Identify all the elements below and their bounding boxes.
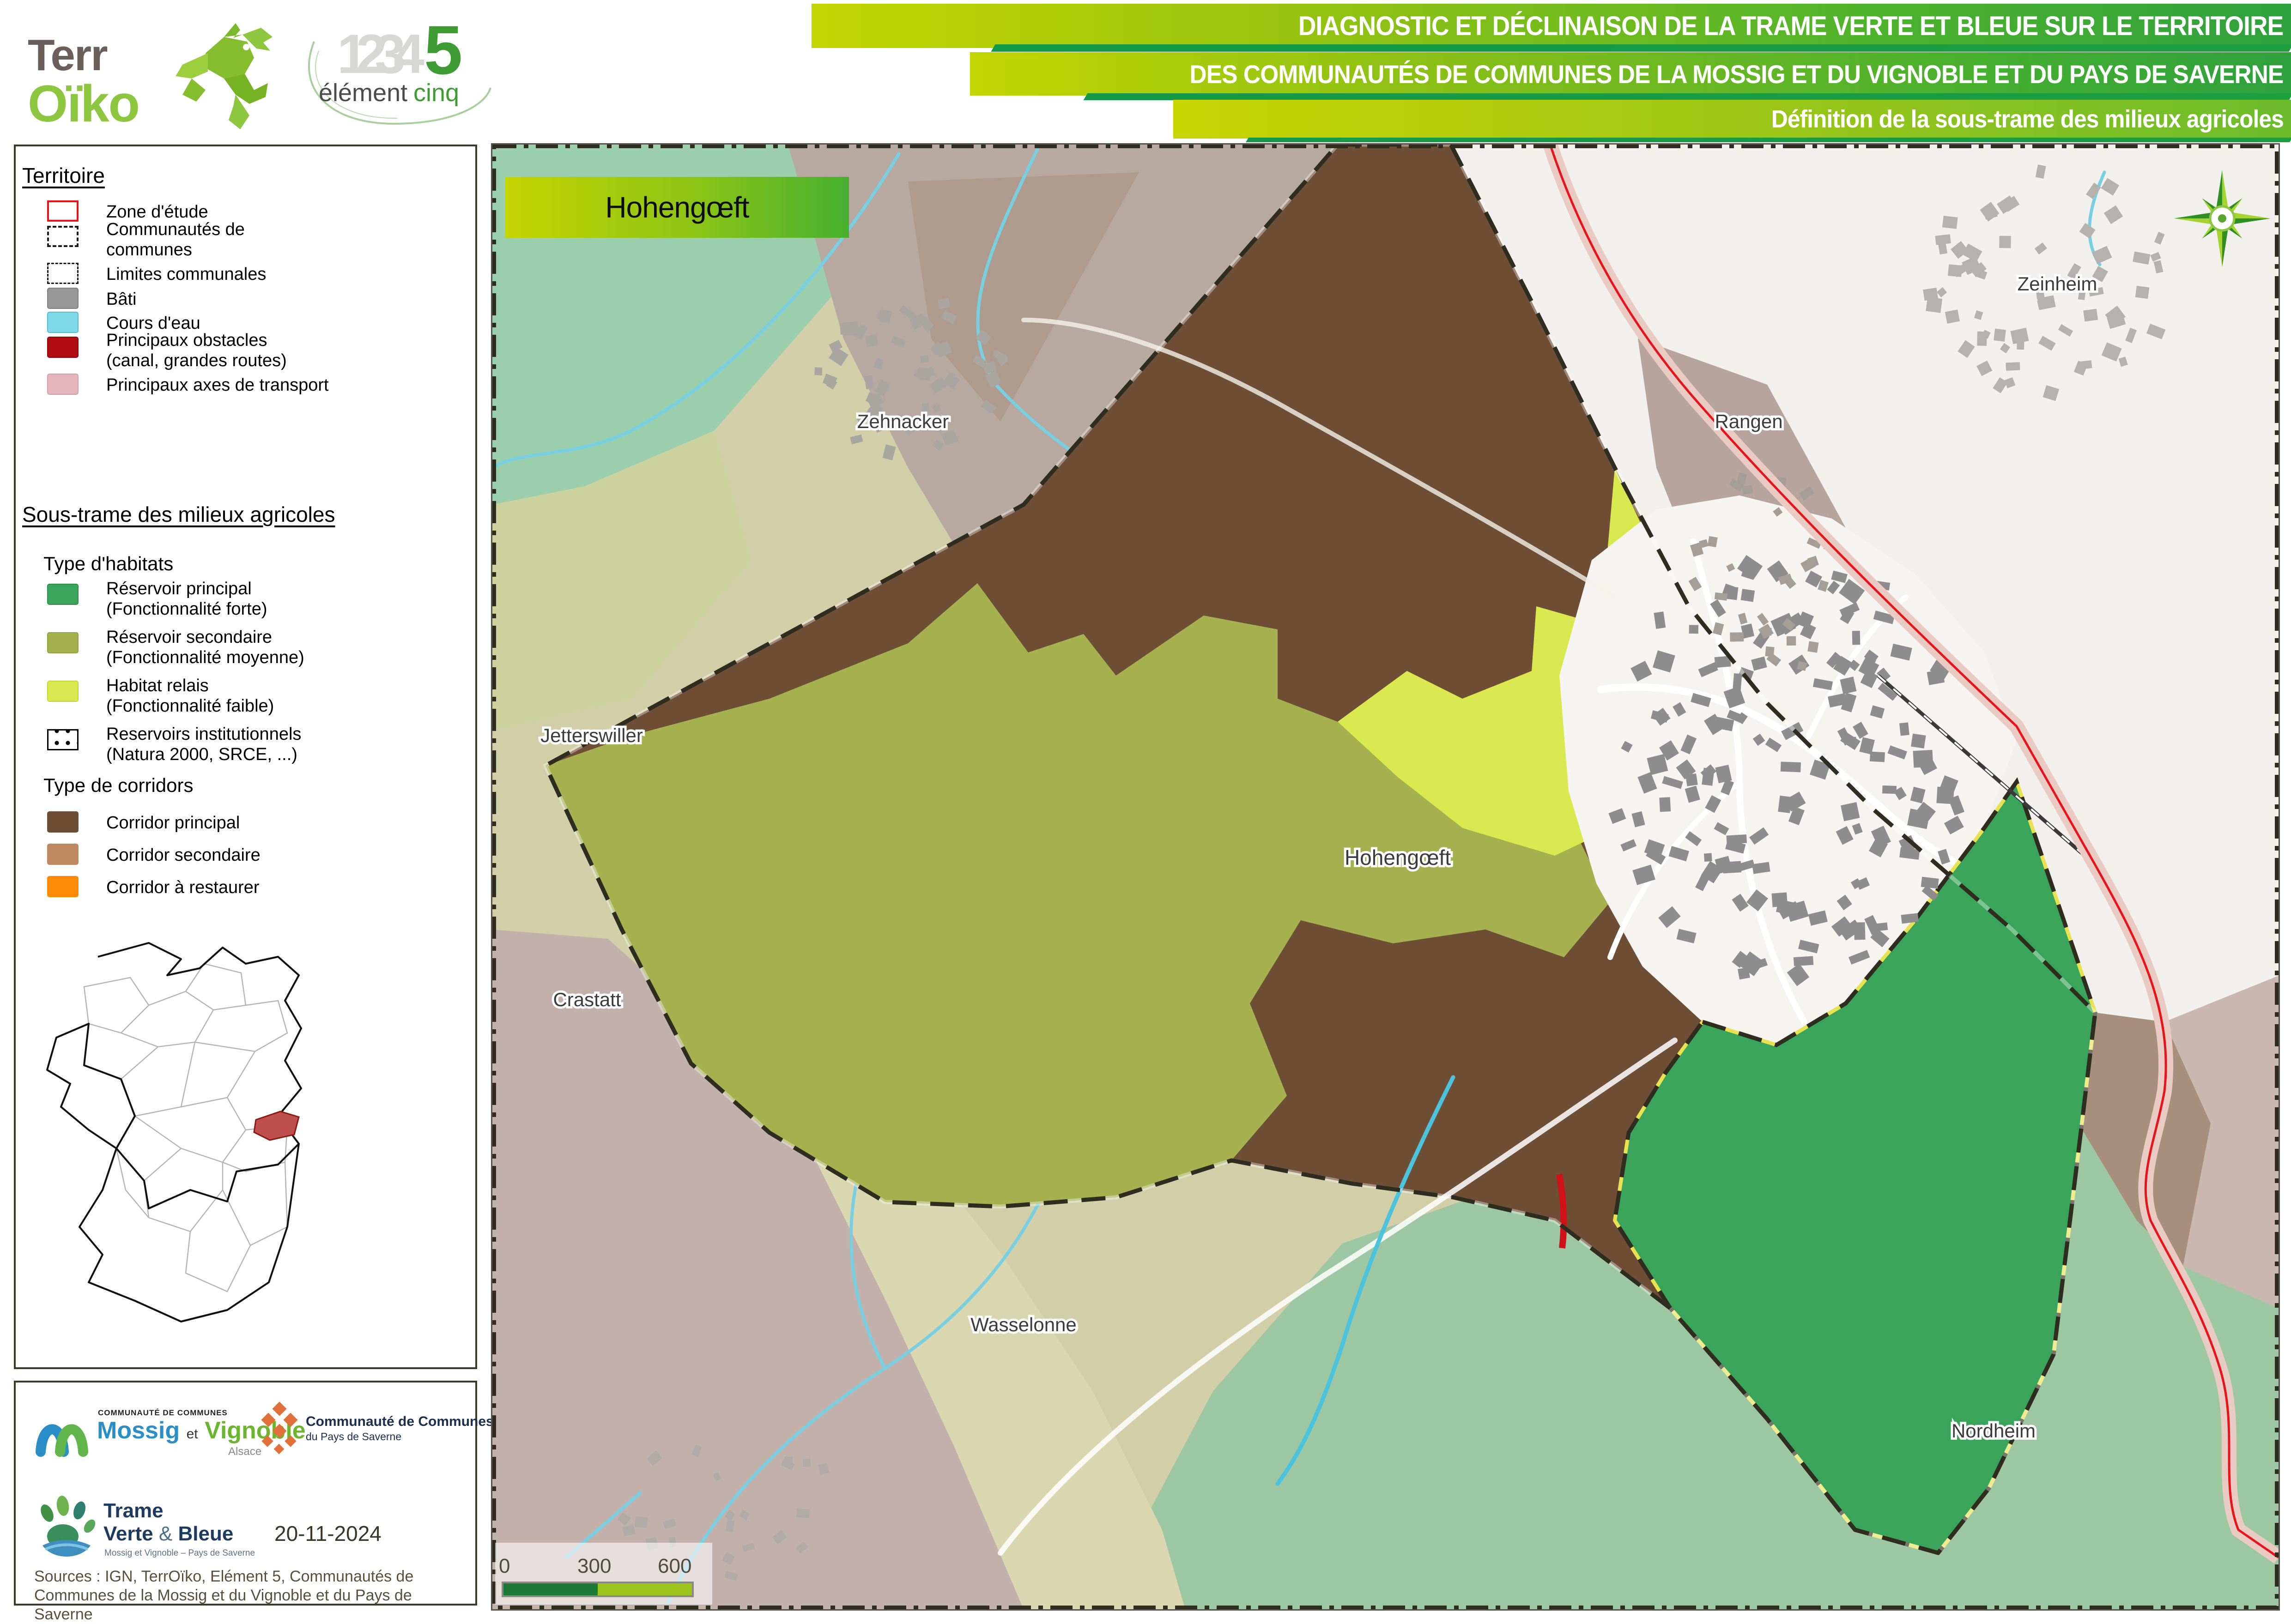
map-viewport[interactable]: Zehnacker Zeinheim Rangen Jetterswiller …: [491, 143, 2280, 1611]
map-title-text: Hohengœft: [605, 190, 749, 224]
terroiko-logo-text-oiko: Oïko: [28, 74, 139, 133]
legend-swatch-habitat-relais: [47, 681, 79, 702]
legend-label-communautes: Communautés de: [106, 219, 245, 240]
map-date: 20-11-2024: [274, 1521, 382, 1546]
banner-accent-bar: [1246, 138, 2291, 142]
tvb-logo-line2: Verte & Bleue: [103, 1522, 233, 1546]
legend-label-obstacles: Principaux obstacles: [106, 330, 267, 350]
legend-label-reservoir-principal: Réservoir principal: [106, 579, 252, 599]
scale-bar-segments: [502, 1582, 694, 1597]
saverne-logo-line2: du Pays de Saverne: [306, 1431, 401, 1443]
element-cinq-text-cinq: cinq: [413, 78, 459, 107]
scale-tick-0: 0: [499, 1555, 510, 1578]
legend-label-reservoirs-institutionnels: Reservoirs institutionnels: [106, 724, 301, 744]
tvb-verte: Verte: [103, 1522, 153, 1545]
tvb-logo-line1: Trame: [103, 1499, 164, 1522]
mossig-name1: Mossig: [97, 1417, 180, 1444]
legend-swatch-reservoirs-institutionnels: [47, 729, 79, 750]
tvb-amp: &: [159, 1522, 172, 1545]
legend-habitats-subtitle: Type d'habitats: [43, 553, 173, 575]
title-banner-2-text: DES COMMUNAUTÉS DE COMMUNES DE LA MOSSIG…: [1189, 59, 2291, 89]
mossig-logo-small-text: COMMUNAUTÉ DE COMMUNES: [98, 1408, 228, 1418]
legend-label-habitat-relais: Habitat relais: [106, 676, 209, 696]
legend-label-corridor-restaurer: Corridor à restaurer: [106, 877, 260, 898]
mossig-et: et: [187, 1426, 198, 1442]
trame-verte-bleue-logo: Trame Verte & Bleue Mossig et Vignoble –…: [34, 1496, 256, 1570]
saverne-diamonds-icon: [256, 1401, 302, 1456]
title-banner-2: DES COMMUNAUTÉS DE COMMUNES DE LA MOSSIG…: [970, 52, 2291, 96]
legend-swatch-corridor-restaurer: [47, 876, 79, 897]
legend-swatch-cours-eau: [47, 312, 79, 333]
legend-swatch-obstacles: [47, 337, 79, 358]
legend-swatch-corridor-principal: [47, 811, 79, 833]
label-zehnacker: Zehnacker: [857, 411, 949, 432]
legend-swatch-reservoir-principal: [47, 584, 79, 605]
mossig-m-icon: [34, 1406, 90, 1461]
footer-panel: COMMUNAUTÉ DE COMMUNES Mossig et Vignobl…: [14, 1381, 477, 1606]
legend-swatch-reservoir-secondaire: [47, 632, 79, 653]
legend-label-habitat-relais-2: (Fonctionnalité faible): [106, 696, 274, 716]
tvb-logo-subtitle: Mossig et Vignoble – Pays de Saverne: [104, 1548, 255, 1558]
legend-label-reservoir-secondaire-2: (Fonctionnalité moyenne): [106, 647, 304, 668]
title-banner-1: DIAGNOSTIC ET DÉCLINAISON DE LA TRAME VE…: [812, 4, 2291, 48]
tvb-paw-icon: [34, 1496, 99, 1565]
mossig-vignoble-logo: COMMUNAUTÉ DE COMMUNES Mossig et Vignobl…: [34, 1401, 251, 1470]
legend-swatch-axes-transport: [47, 374, 79, 395]
legend-swatch-limites: [47, 263, 79, 284]
legend-swatch-zone-etude: [47, 200, 79, 222]
legend-label-reservoirs-institutionnels-2: (Natura 2000, SRCE, ...): [106, 744, 297, 765]
label-zeinheim: Zeinheim: [2018, 273, 2097, 295]
tvb-bleue: Bleue: [178, 1522, 233, 1545]
frog-icon: [155, 9, 289, 134]
legend-swatch-corridor-secondaire: [47, 844, 79, 865]
scale-tick-300: 300: [577, 1555, 611, 1578]
scale-bar: 0 300 600 m: [495, 1543, 712, 1605]
title-banner-1-text: DIAGNOSTIC ET DÉCLINAISON DE LA TRAME VE…: [1298, 11, 2291, 42]
element-cinq-numbers: 1234: [337, 22, 412, 86]
legend-label-reservoir-secondaire: Réservoir secondaire: [106, 627, 272, 647]
label-crastatt: Crastatt: [553, 989, 621, 1010]
legend-label-axes-transport: Principaux axes de transport: [106, 375, 329, 395]
header: Terr Oïko 1234 5 élément cinq DIAGNOSTIC…: [0, 0, 2291, 143]
banner-accent-bar: [991, 44, 2291, 52]
legend-label-corridor-principal: Corridor principal: [106, 813, 240, 833]
pays-saverne-logo: Communauté de Communes du Pays de Savern…: [256, 1401, 473, 1470]
legend-swatch-bati: [47, 288, 79, 309]
saverne-logo-line1: Communauté de Communes: [306, 1414, 494, 1430]
inset-cc-boundary: [84, 1065, 135, 1148]
legend-label-reservoir-principal-2: (Fonctionnalité forte): [106, 599, 267, 619]
sources-text: Sources : IGN, TerrOïko, Elément 5, Comm…: [34, 1567, 459, 1624]
label-wasselonne: Wasselonne: [970, 1314, 1077, 1335]
legend-territoire-title: Territoire: [22, 163, 105, 188]
terroiko-logo: Terr Oïko: [25, 9, 284, 134]
label-hohengoeft: Hohengœft: [1345, 845, 1451, 869]
legend-panel: Territoire Zone d'étude Communautés de c…: [14, 145, 477, 1369]
legend-soustrame-title: Sous-trame des milieux agricoles: [22, 502, 335, 527]
element-cinq-logo: 1234 5 élément cinq: [300, 14, 494, 134]
map-title-box: Hohengœft: [505, 177, 849, 238]
banner-accent-bar: [1084, 93, 2291, 100]
legend-corridors-subtitle: Type de corridors: [43, 774, 193, 797]
legend-label-limites: Limites communales: [106, 264, 266, 284]
legend-label-communautes-2: communes: [106, 240, 192, 260]
label-rangen: Rangen: [1715, 411, 1782, 432]
locator-inset-map: [29, 931, 310, 1338]
terroiko-logo-text-terr: Terr: [28, 30, 107, 81]
title-banner-3: Définition de la sous-trame des milieux …: [1173, 100, 2291, 139]
legend-label-obstacles-2: (canal, grandes routes): [106, 350, 287, 371]
label-jetterswiller: Jetterswiller: [540, 724, 643, 746]
legend-swatch-communautes: [47, 226, 79, 247]
title-banner-3-text: Définition de la sous-trame des milieux …: [1771, 105, 2291, 133]
map-canvas[interactable]: Zehnacker Zeinheim Rangen Jetterswiller …: [492, 145, 2279, 1609]
element-cinq-text: élément: [319, 78, 407, 107]
label-nordheim: Nordheim: [1952, 1420, 2036, 1442]
legend-label-corridor-secondaire: Corridor secondaire: [106, 845, 261, 865]
legend-label-bati: Bâti: [106, 289, 136, 309]
